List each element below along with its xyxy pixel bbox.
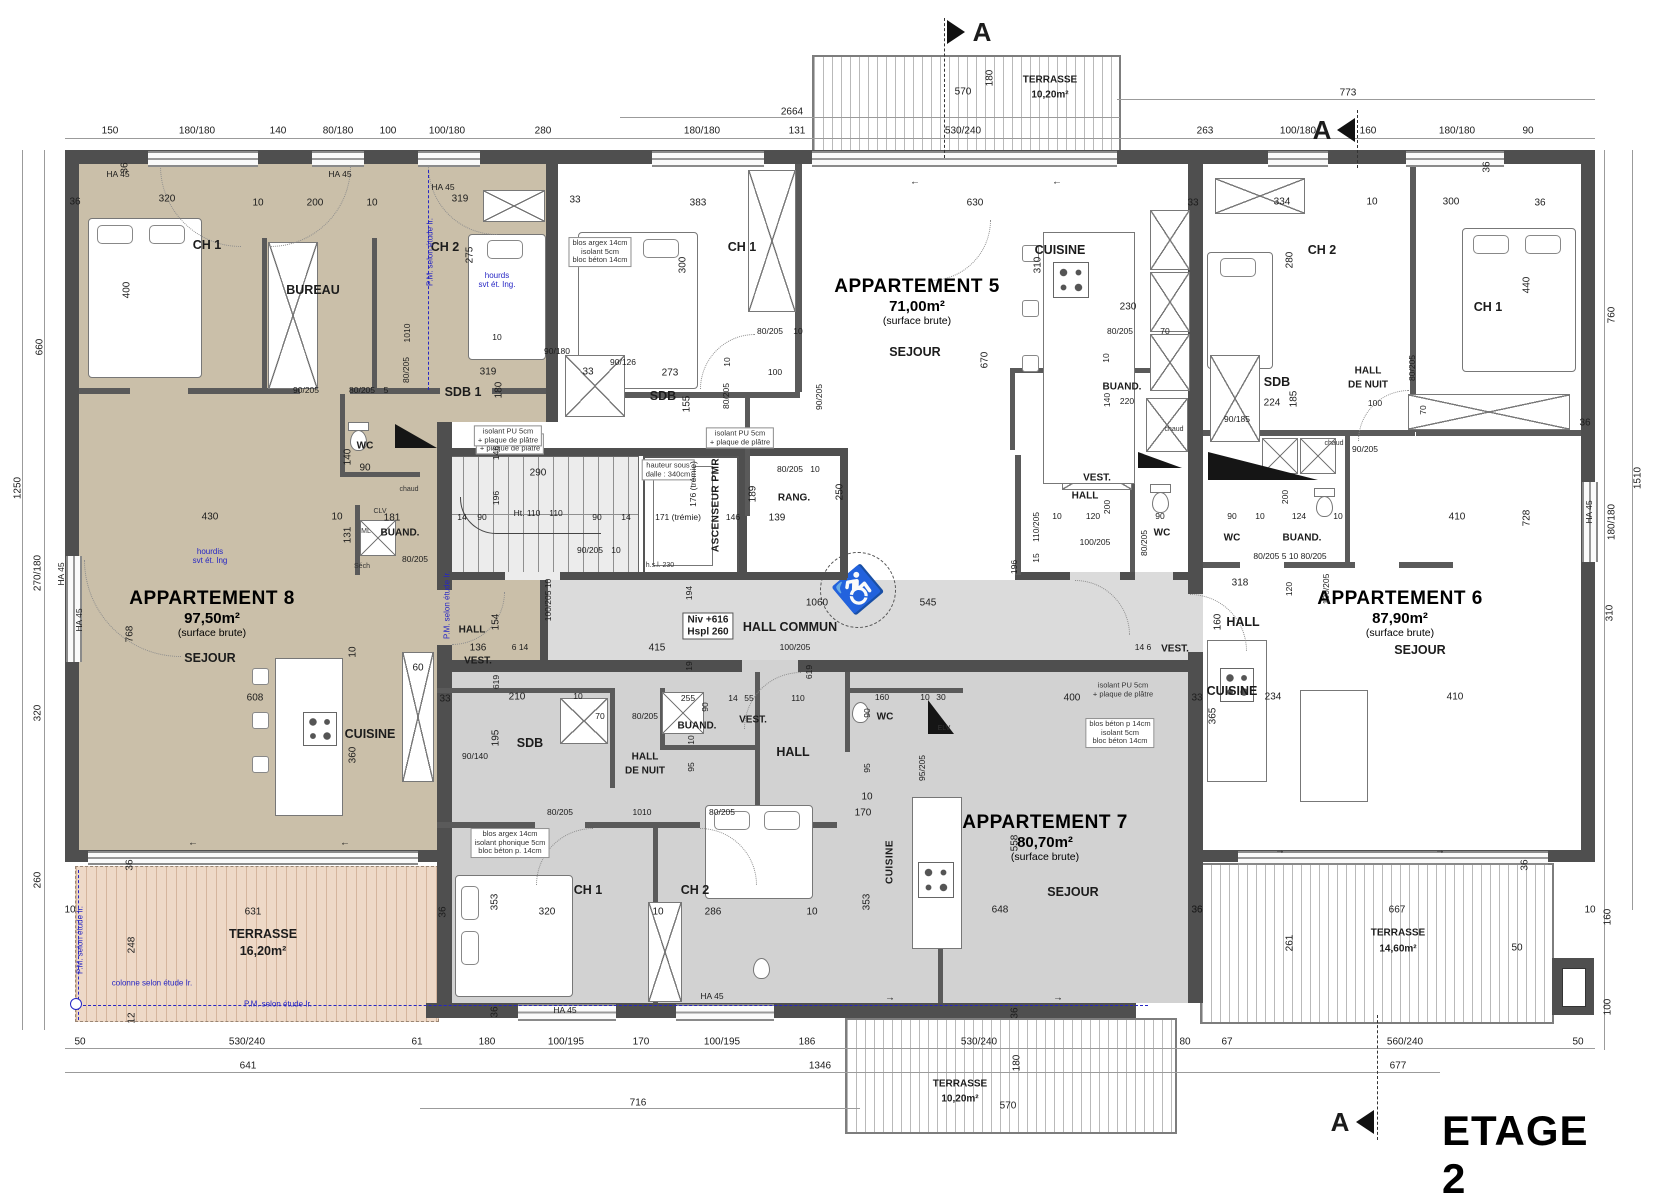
plan-label: 320 [32,705,44,722]
plan-label: 100 [768,368,782,378]
plan-label: 310 [1604,605,1616,622]
plan-label: 410 [1449,511,1466,523]
plan-label: hourds svt ét. Ing. [479,271,516,289]
plan-label: HA 45 [106,170,129,180]
plan-label: 36 [1519,859,1531,870]
plan-label: 36 [124,859,136,870]
plan-label: HALL [776,745,809,759]
dimension-line [22,150,23,1030]
plan-label: 570 [955,86,972,98]
plan-label: 136 [470,642,487,654]
plan-label: 545 [920,597,937,609]
partition [340,472,420,477]
plan-label: 660 [34,339,46,356]
plan-label: 80/205 [777,465,803,475]
plan-label: 36 [1481,161,1493,172]
plan-label: → [885,992,895,1004]
plan-label: 768 [124,626,136,643]
wall-apt8-apt5 [546,164,558,422]
plan-label: SDB [1264,375,1290,389]
plan-label: 319 [452,193,469,205]
plan-label: 186 [799,1036,816,1048]
plan-label: 70 [1160,327,1169,337]
plan-label: CUISINE [884,840,896,884]
plan-label: VEST. [1161,643,1189,655]
plan-label: 10 [331,511,342,523]
plan-label: TERRASSE [229,927,297,941]
plan-label: 10 [793,327,802,337]
door-gap [130,388,188,394]
window [652,151,764,167]
plan-label: 180/180 [1439,125,1475,137]
apartment-area: 80,70m² [962,834,1128,851]
plan-label: CLV [373,508,386,516]
plan-label: chaud [1164,426,1183,434]
plan-label: 10 [920,693,929,703]
section-line [1377,1015,1378,1140]
plan-label: DE NUIT [1348,379,1388,391]
plan-label: 140 [342,449,354,466]
plan-label: 648 [992,904,1009,916]
plan-label: 50 [1572,1036,1583,1048]
plan-label: 100 [1602,999,1614,1016]
dimension-line [620,117,1120,118]
plan-label: 160 [1602,909,1614,926]
terrace-top [812,55,1121,164]
plan-label: 95 [687,762,697,771]
plan-label: CH 1 [574,883,602,897]
plan-label: 33 [1187,197,1198,209]
plan-label: 1060 [806,597,828,609]
plan-label: 320 [539,906,556,918]
partition [372,238,377,388]
section-arrow-icon [947,20,965,44]
plan-label: 36 [69,196,80,208]
plan-label: 1510 [1632,467,1644,489]
dimension-line [44,150,45,1030]
section-arrow-icon [1356,1110,1374,1134]
bed [88,218,202,378]
plan-label: ← [340,837,350,849]
plan-label: BUAND. [678,720,717,732]
plan-label: 160 [1360,125,1377,137]
shower [1210,355,1260,442]
plan-label: 273 [662,367,679,379]
plan-label: WC [877,711,894,723]
plan-label: 275 [464,247,476,264]
plan-label: hourdis svt ét. Ing [193,547,228,565]
plan-label: WC [1154,527,1171,539]
plan-label: 195 [490,730,502,747]
partition [1410,164,1416,432]
plan-label: 200 [1103,500,1113,514]
plan-label: HA 45 [1585,500,1595,523]
plan-label: SDB [517,736,543,750]
wheelchair-icon: ♿ [829,561,887,619]
terrace-apartment-6 [1200,863,1554,1024]
apartment-name: APPARTEMENT 8 [129,588,295,610]
plan-label: 318 [1232,577,1249,589]
apartment-name: APPARTEMENT 5 [834,276,1000,298]
partition [795,164,802,392]
plan-label: 170 [633,1036,650,1048]
window [312,151,364,167]
plan-label: VEST. [1083,472,1111,484]
plan-label: 530/240 [945,125,981,137]
plan-label: 12 [126,1012,138,1023]
plan-label: 300 [677,257,689,274]
toilet [1316,496,1333,517]
wall-core-bottom [437,572,847,580]
plan-label: 33 [569,194,580,206]
plan-label: HALL [1226,615,1259,629]
plan-label: chaud [399,486,418,494]
wall-exterior-left [65,164,79,862]
plan-label: 14 [728,694,737,704]
plan-label: 90 [1227,512,1236,522]
partition [1416,430,1581,436]
plan-label: 773 [1340,87,1357,99]
plan-label: 90 [359,462,370,474]
plan-label: HALL [1072,490,1099,502]
plan-label: BUAND. [1283,532,1322,544]
plan-label: 667 [1389,904,1406,916]
plan-label: Séch [354,563,370,571]
plan-label: 171 (trémie) [655,513,701,523]
plan-label: isolant PU 5cm + plaque de plâtre [706,427,774,448]
plan-label: 263 [1197,125,1214,137]
plan-label: 353 [489,894,501,911]
wheelchair-accessibility-symbol: ♿ [820,552,896,628]
toilet-tank [1314,488,1335,497]
plan-label: 80/205 [709,808,735,818]
plan-label: SDB [650,389,676,403]
plan-label: 360 [347,747,359,764]
plan-label: 120 [1285,582,1295,596]
plan-label: 36 [1009,1007,1021,1018]
plan-label: 146 [492,446,502,460]
plan-label: 10 [1255,512,1264,522]
plan-label: HALL [459,624,486,636]
plan-label: 80/180 [323,125,354,137]
wardrobe [1408,394,1570,430]
partition [845,672,850,752]
apartment-area: 71,00m² [834,298,1000,315]
plan-label: 14 [621,513,630,523]
section-line [1357,110,1358,168]
plan-label: 61 [411,1036,422,1048]
bed [455,875,573,997]
plan-label: 1010 [633,808,652,818]
plan-label: 140 [1103,393,1113,407]
dimension-line [1117,99,1595,100]
plan-label: 319 [480,366,497,378]
cabinet [1150,210,1190,270]
plan-label: 154 [490,614,502,631]
plan-label: isolant PU 5cm + plaque de plâtre [474,425,542,446]
plan-label: BUAND. [1103,381,1142,393]
plan-label: blos argex 14cm isolant phonique 5cm blo… [471,828,550,858]
toilet [753,958,770,979]
terrace-bottom-center [845,1018,1177,1134]
stool [1022,300,1039,317]
plan-label: 10 [347,646,359,657]
plan-label: 90 [1155,512,1164,522]
blue-study-line [78,1005,1148,1006]
plan-label: 230 [1120,301,1137,313]
plan-label: 90 [701,702,711,711]
plan-label: 155 [681,396,693,413]
partition [437,688,615,693]
plan-label: 286 [705,906,722,918]
plan-label: 608 [247,692,264,704]
plan-label: 60 [412,662,423,674]
plan-label: ASCENSEUR PMR [710,458,722,552]
plan-label: HA 45 [75,608,85,631]
plan-label: ML [361,528,371,536]
plan-label: 80/205 [1140,530,1150,556]
section-letter: A [1331,1108,1350,1138]
dimension-line [65,1048,1595,1049]
partition [600,392,800,398]
plan-label: 100/205 [1080,538,1111,548]
plan-label: P.M. selon étude Ir. [75,906,84,974]
wall-rang-top [747,448,840,456]
plan-label: 14,60m² [1379,943,1416,955]
section-line [944,18,945,158]
plan-label: 334 [1274,196,1291,208]
plan-label: 160 [875,693,889,703]
plan-label: 36 [437,906,449,917]
plan-label: 90 [592,513,601,523]
plan-label: → [1435,845,1445,857]
plan-label: 90 [477,513,486,523]
door-gap [1355,562,1399,568]
window [1268,151,1328,167]
plan-label: 80/205 [402,555,428,565]
apartment-area-sub: (surface brute) [1317,627,1483,639]
plan-label: 10 [723,357,733,366]
bed [1207,252,1273,369]
cabinet [1150,334,1190,391]
window [148,151,258,167]
partition [1015,455,1021,575]
plan-label: 30 [936,693,945,703]
partition [610,688,615,788]
plan-label: 180 [984,70,996,87]
plan-label: 630 [967,197,984,209]
plan-label: CH 2 [681,883,709,897]
plan-label: 10 [573,692,582,702]
door-swing [1358,390,1409,441]
plan-label: 95/205 [918,755,928,781]
plan-label: 120 [1086,512,1100,522]
plan-label: 100/205 10 [544,579,554,622]
plan-label: 10 [366,197,377,209]
plan-label: 70 [595,712,604,722]
plan-label: 185 [1288,391,1300,408]
plan-label: 10 [810,465,819,475]
threshold-wedge [1138,452,1182,468]
plan-label: 110/205 [1032,512,1042,542]
plan-label: 180/180 [1606,504,1618,540]
plan-label: 320 [159,193,176,205]
plan-label: 196 [492,491,502,505]
plan-label: 415 [649,642,666,654]
plan-label: 261 [1284,935,1296,952]
plan-label: 80/205 5 10 80/205 [1253,552,1326,562]
plan-label: 280 [1284,252,1296,269]
plan-label: 67 [1221,1036,1232,1048]
plan-label: Ht. 110 [514,509,541,519]
plan-label: 410 [1447,691,1464,703]
plan-label: 290 [530,467,547,479]
plan-label: 760 [1606,307,1618,324]
plan-label: blos béton p 14cm isolant 5cm bloc béton… [1085,718,1154,748]
plan-label: TERRASSE [1371,927,1425,939]
plan-label: CH 1 [728,240,756,254]
plan-label: 170 [855,807,872,819]
stool [252,756,269,773]
plan-label: 383 [690,197,707,209]
plan-label: 90/205 [293,386,319,396]
plan-label: 15 [1032,553,1042,562]
plan-label: ← [1052,176,1062,188]
plan-label: HALL [1355,365,1382,377]
plan-label: 140 [270,125,287,137]
plan-label: 10 [861,791,872,803]
plan-label: → [1275,845,1285,857]
plan-label: 100 [380,125,397,137]
plan-label: P.M. selon étude Ir. [425,218,434,286]
plan-label: 224 [1264,397,1281,409]
plan-label: hauteur sous dalle : 340cm [642,459,695,480]
plan-label: 131 [789,125,806,137]
plan-label: SEJOUR [1047,885,1098,899]
plan-label: 300 [1443,196,1460,208]
plan-label: 16,20m² [240,944,287,958]
plan-label: 80/205 [349,386,375,396]
plan-label: 36 [1579,417,1590,429]
door-gap-apt5-entry2 [1135,572,1173,580]
plan-label: HA 45 [57,562,67,585]
plan-label: 36 [489,1006,501,1017]
plan-label: BUAND. [381,527,420,539]
plan-label: 560/240 [1387,1036,1423,1048]
plan-label: CUISINE [345,727,396,741]
plan-label: 641 [240,1060,257,1072]
section-letter: A [973,18,992,48]
cooktop [303,712,337,746]
plan-label: 260 [32,872,44,889]
plan-label: Niv +616 Hspl 260 [682,613,733,640]
apartment-area: 87,90m² [1317,610,1483,627]
plan-label: 55 [744,694,753,704]
plan-label: HA 45 [700,992,723,1002]
plan-label: 2664 [781,106,803,118]
plan-label: 670 [979,352,991,369]
plan-label: 139 [769,512,786,524]
plan-label: 90/205 [577,546,603,556]
plan-label: 270/180 [32,555,44,591]
plan-label: 100/180 [429,125,465,137]
dimension-line [1632,150,1633,910]
plan-label: 5 [384,386,389,396]
plan-label: 150 [102,125,119,137]
window [676,1004,774,1021]
plan-label: P.M. selon étude Ir. [442,571,451,639]
plan-label: → [1053,992,1063,1004]
window [418,151,480,167]
apartment-area-sub: (surface brute) [834,315,1000,327]
plan-label: 400 [1064,692,1081,704]
dimension-line [65,138,1595,139]
plan-label: 50 [74,1036,85,1048]
plan-label: 90/205 [815,384,825,410]
sliding-door [88,851,418,865]
plan-label: 90/180 [544,347,570,357]
plan-label: HALL COMMUN [743,620,837,634]
plan-label: 10 [1584,904,1595,916]
plan-label: 10 [492,333,501,343]
column-circle [70,998,82,1010]
plan-label: 10,20m² [941,1093,978,1105]
plan-label: SEJOUR [1394,643,1445,657]
plan-label: 80/205 [547,808,573,818]
plan-label: 80/205 [1408,355,1418,381]
plan-label: ← [910,176,920,188]
plan-label: 110 [549,509,563,519]
plan-label: 160 [1212,614,1224,631]
partition [262,238,267,388]
plan-label: 558 [1009,835,1021,852]
plan-label: 10,20m² [1031,89,1068,101]
plan-label: BUREAU [286,283,339,297]
plan-label: P.M. selon étude Ir. [244,999,312,1008]
plan-label: 10 [1102,353,1112,362]
plan-label: 80/205 [757,327,783,337]
plan-label: 619 [805,665,815,679]
plan-label: chaud [1324,440,1343,448]
plan-label: 10 [1333,512,1342,522]
plan-label: 194 [685,586,695,600]
plan-label: CUISINE [1207,684,1258,698]
stool [252,712,269,729]
plan-label: 234 [1265,691,1282,703]
plan-label: SEJOUR [889,345,940,359]
plan-label: 80 [1179,1036,1190,1048]
wardrobe [1215,178,1305,214]
partition [1345,436,1350,562]
plan-label: isolant PU 5cm + plaque de plâtre [1093,681,1153,698]
apartment-name: APPARTEMENT 7 [962,812,1128,834]
plan-label: SEJOUR [184,651,235,665]
plan-label: 365 [1207,708,1219,725]
plan-label: 10 [1366,196,1377,208]
plan-label: CH 1 [193,238,221,252]
plan-label: CH 1 [1474,300,1502,314]
plan-label: 400 [121,282,133,299]
plan-label: VEST. [464,655,492,667]
plan-label: RANG. [778,492,810,504]
plan-label: HA 45 [431,183,454,193]
partition [660,745,760,750]
plan-label: 80/205 [402,357,412,383]
wall-apt5-apt6 [1188,164,1203,1003]
plan-label: 80/205 [722,383,732,409]
plan-label: 10 [1052,512,1061,522]
plan-label: 33 [439,693,450,705]
